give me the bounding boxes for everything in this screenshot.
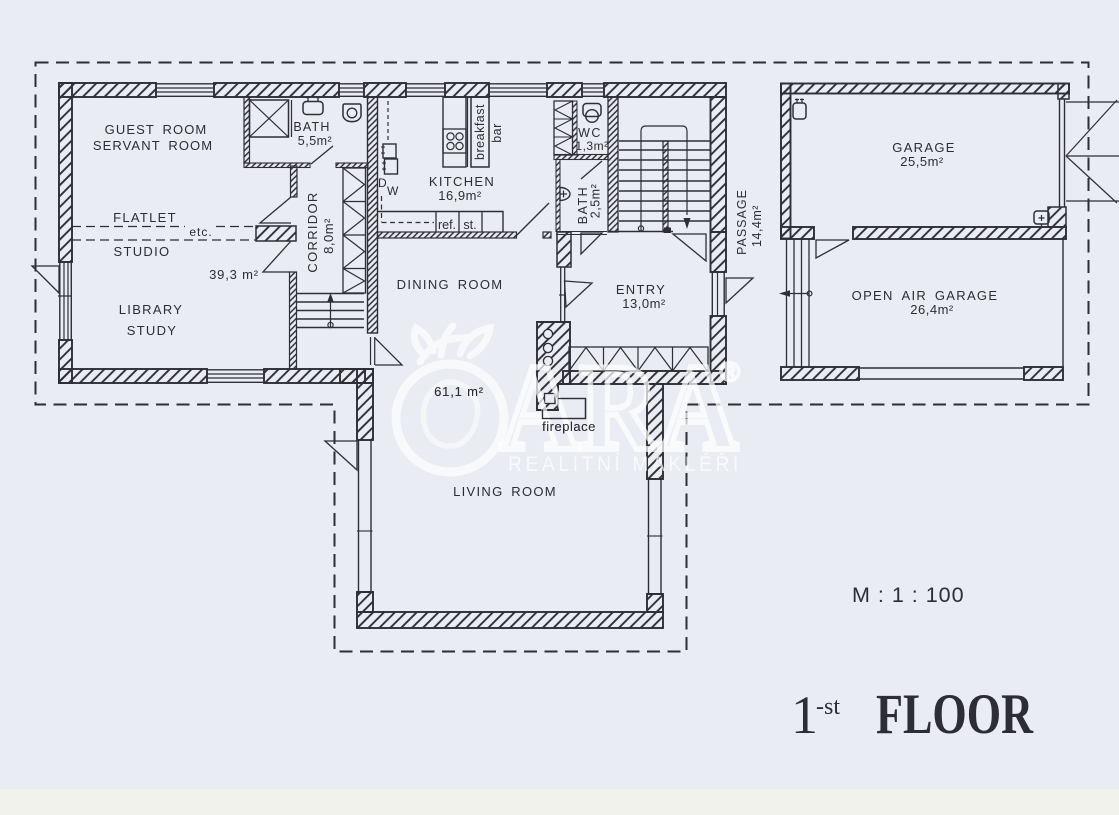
svg-text:st.: st. [463, 218, 476, 232]
svg-text:W: W [387, 184, 399, 198]
svg-text:FLATLET: FLATLET [113, 210, 177, 225]
svg-text:REALITNÍ MAKLÉŘI: REALITNÍ MAKLÉŘI [508, 451, 742, 476]
svg-text:bar: bar [490, 123, 504, 143]
svg-text:BATH: BATH [293, 120, 330, 134]
svg-text:2,5m²: 2,5m² [589, 184, 603, 218]
svg-text:ENTRY: ENTRY [616, 282, 666, 297]
svg-text:39,3 m²: 39,3 m² [209, 267, 259, 282]
svg-text:SERVANT ROOM: SERVANT ROOM [93, 138, 213, 153]
svg-text:FLOOR: FLOOR [876, 683, 1034, 746]
svg-text:KITCHEN: KITCHEN [429, 174, 495, 189]
svg-text:13,0m²: 13,0m² [622, 296, 666, 311]
svg-text:1: 1 [791, 685, 818, 745]
svg-text:PASSAGE: PASSAGE [735, 189, 749, 255]
svg-text:26,4m²: 26,4m² [910, 302, 954, 317]
svg-text:1,3m²: 1,3m² [575, 139, 608, 153]
svg-text:WC: WC [578, 126, 602, 140]
svg-text:5,5m²: 5,5m² [298, 134, 332, 148]
svg-text:-st: -st [816, 694, 840, 720]
svg-text:ref.: ref. [438, 218, 456, 232]
svg-text:®: ® [720, 357, 740, 387]
svg-text:GUEST ROOM: GUEST ROOM [105, 122, 208, 137]
svg-text:etc.: etc. [189, 225, 212, 239]
svg-text:8,0m²: 8,0m² [321, 218, 336, 254]
svg-text:DINING ROOM: DINING ROOM [397, 277, 504, 292]
svg-text:M : 1 : 100: M : 1 : 100 [852, 583, 965, 607]
svg-text:fireplace: fireplace [542, 419, 596, 434]
svg-text:LIVING ROOM: LIVING ROOM [453, 484, 557, 499]
svg-text:14,4m²: 14,4m² [750, 205, 764, 247]
svg-text:16,9m²: 16,9m² [438, 188, 482, 203]
svg-text:25,5m²: 25,5m² [900, 154, 944, 169]
svg-text:breakfast: breakfast [473, 104, 487, 160]
svg-text:OPEN AIR GARAGE: OPEN AIR GARAGE [852, 288, 999, 303]
svg-text:STUDIO: STUDIO [114, 244, 171, 259]
svg-text:D: D [378, 176, 387, 190]
svg-text:61,1 m²: 61,1 m² [434, 384, 484, 399]
svg-text:GARAGE: GARAGE [892, 140, 955, 155]
svg-text:CORRIDOR: CORRIDOR [305, 191, 320, 272]
svg-text:STUDY: STUDY [127, 323, 178, 338]
svg-text:LIBRARY: LIBRARY [119, 302, 184, 317]
